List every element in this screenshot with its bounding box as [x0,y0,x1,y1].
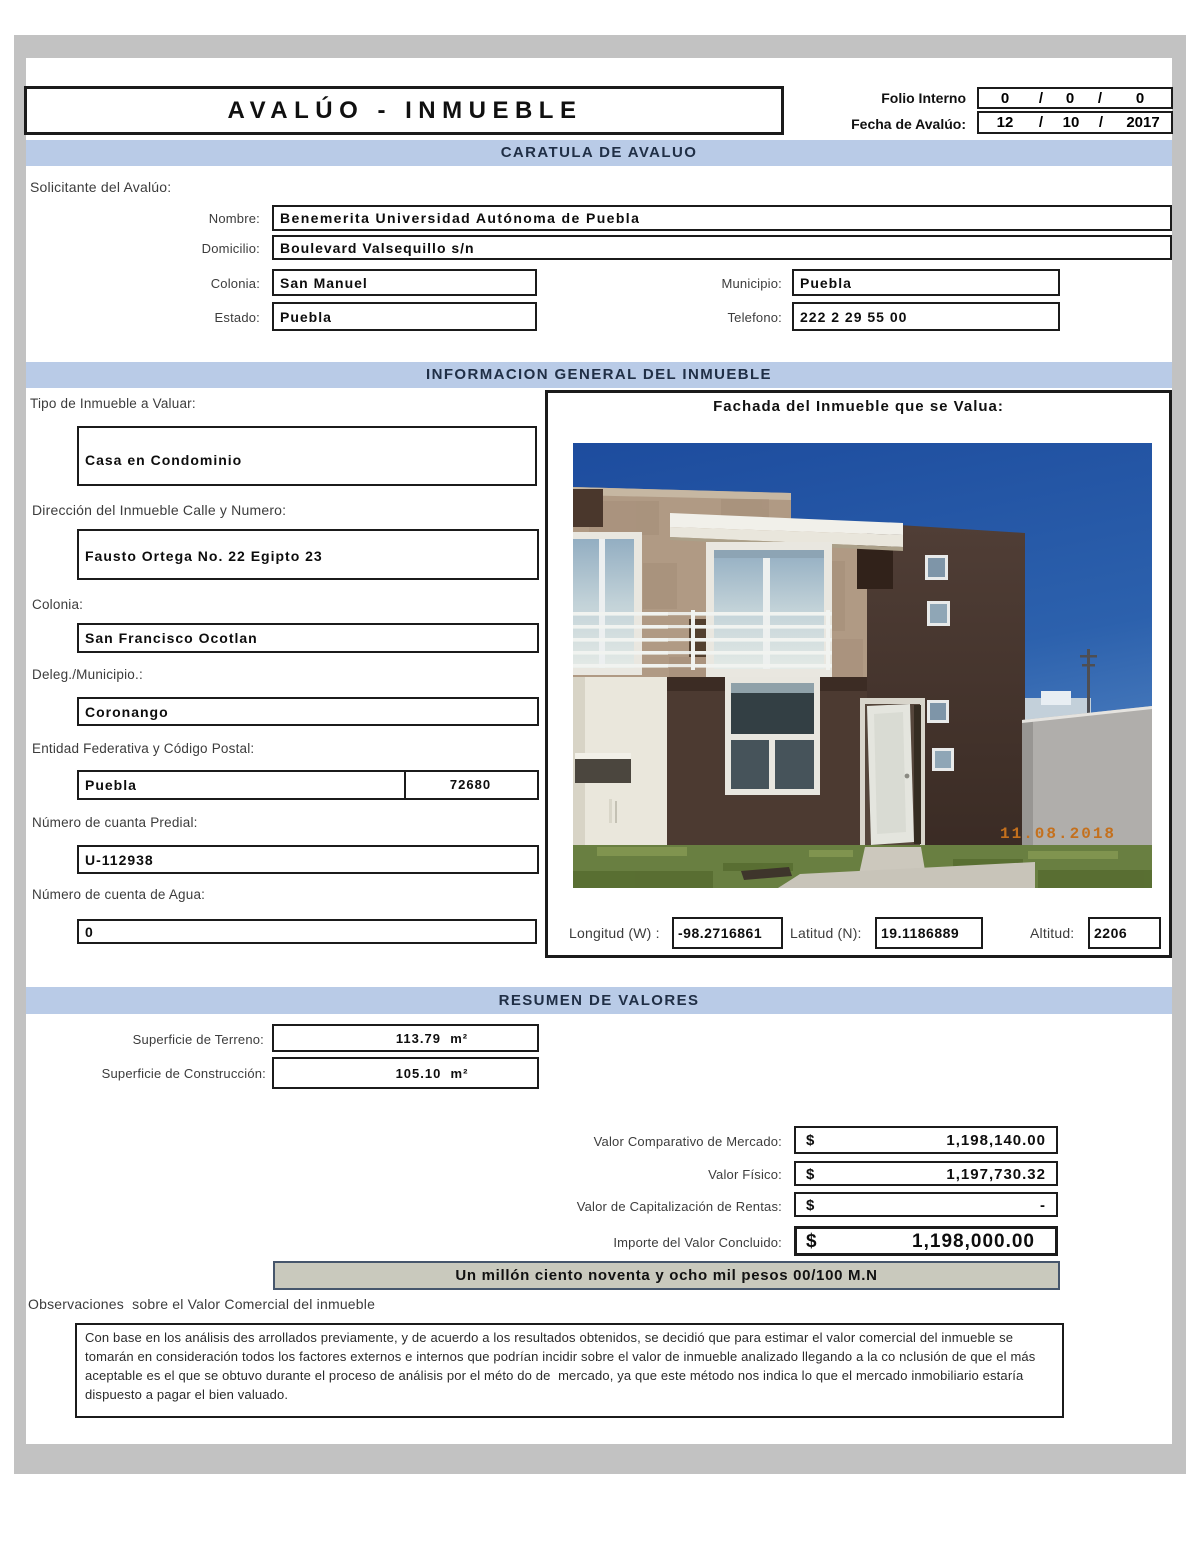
svg-text:11.08.2018: 11.08.2018 [1000,825,1116,843]
